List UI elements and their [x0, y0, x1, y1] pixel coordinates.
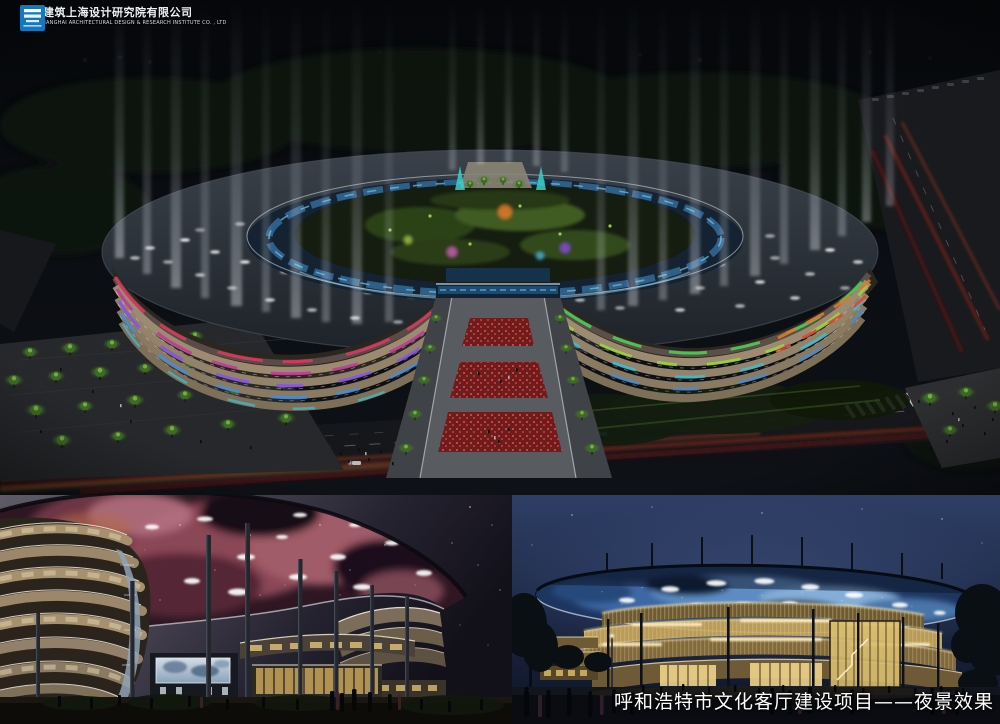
- left-tower: [0, 517, 150, 707]
- company-logo: 中国建筑上海设计研究院有限公司 CHINA SHANGHAI ARCHITECT…: [20, 5, 227, 27]
- logo-icon: [20, 5, 45, 31]
- glass-atrium: [830, 621, 900, 687]
- media-screen: [150, 653, 238, 697]
- company-name-en: CHINA SHANGHAI ARCHITECTURAL DESIGN & RE…: [20, 20, 227, 27]
- presentation-board: 中国建筑上海设计研究院有限公司 CHINA SHANGHAI ARCHITECT…: [0, 0, 1000, 724]
- vignette: [0, 0, 1000, 495]
- project-caption: 呼和浩特市文化客厅建设项目——夜景效果: [614, 687, 994, 714]
- atrium-detail-render: [0, 495, 512, 724]
- company-name-cn: 中国建筑上海设计研究院有限公司: [20, 6, 227, 19]
- main-aerial-render: [0, 0, 1000, 495]
